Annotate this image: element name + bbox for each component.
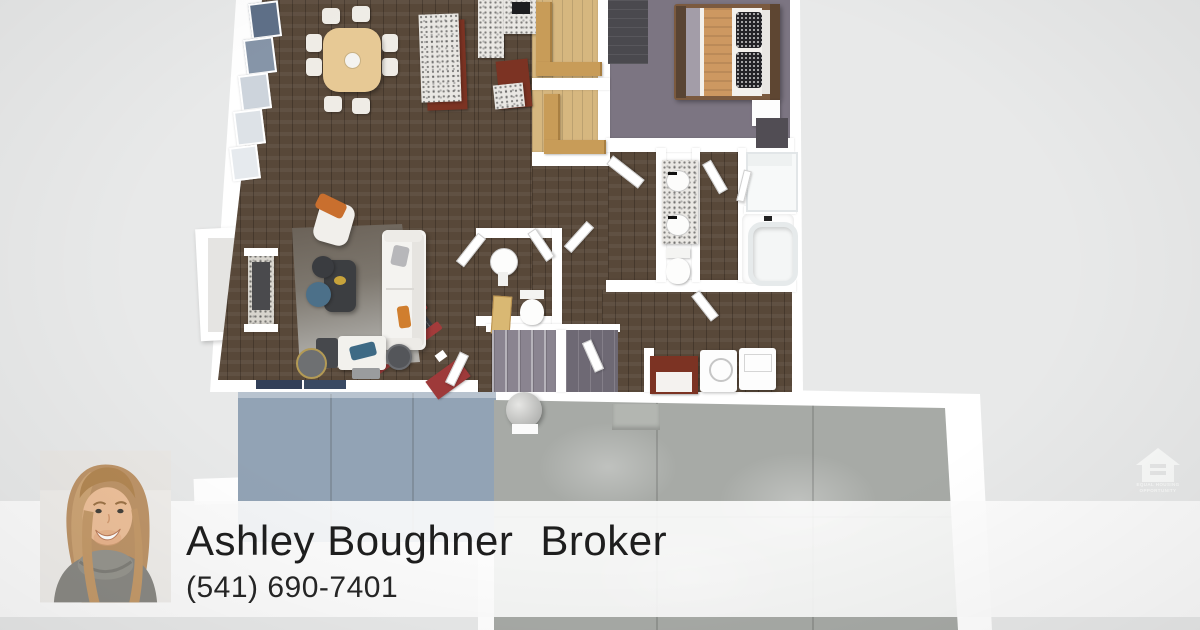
kitchen-counter — [478, 0, 504, 58]
toilet — [666, 258, 690, 284]
fireplace — [252, 262, 270, 310]
staircase — [492, 330, 558, 392]
window — [304, 380, 346, 389]
sink-pedestal — [498, 272, 508, 286]
dining-chair — [382, 58, 398, 76]
shower-bench — [748, 154, 792, 166]
bed-pillow — [736, 12, 762, 48]
stair-divider-wall — [556, 330, 566, 392]
equal-housing-logo: EQUAL HOUSING OPPORTUNITY — [1130, 448, 1186, 500]
bed-pillow — [736, 52, 762, 88]
faucet — [668, 216, 677, 219]
water-heater — [506, 392, 542, 428]
dining-table-centerpiece — [344, 52, 361, 69]
bathtub — [748, 222, 798, 286]
sofa-armrest — [384, 230, 422, 242]
water-heater-base — [512, 424, 538, 434]
toilet-tank — [666, 248, 690, 258]
stairwell-opening — [608, 0, 648, 64]
agent-phone: (541) 690-7401 — [186, 571, 398, 605]
fireplace-mantle — [244, 248, 278, 256]
dining-chair — [352, 6, 370, 22]
bedroom-rug — [756, 118, 788, 148]
wall — [552, 228, 562, 326]
window — [248, 0, 282, 39]
window — [233, 108, 266, 146]
round-pouf — [296, 348, 327, 379]
fireplace-mantle — [244, 324, 278, 332]
window — [229, 144, 261, 181]
dining-chair — [324, 96, 342, 112]
agent-title: Broker — [540, 517, 667, 564]
wall — [532, 78, 610, 90]
dryer-door — [709, 358, 733, 382]
agent-name-row: Ashley BoughnerBroker — [186, 517, 667, 565]
cooktop — [512, 2, 530, 14]
faucet — [668, 172, 677, 175]
pantry-shelf — [536, 62, 602, 76]
agent-name: Ashley Boughner — [186, 517, 513, 564]
equal-housing-text-line1: EQUAL HOUSING — [1130, 482, 1186, 488]
dining-chair — [382, 34, 398, 52]
side-table — [352, 368, 380, 379]
deck-edge-highlight — [238, 392, 496, 398]
wood-cabinet — [491, 295, 513, 334]
window — [238, 72, 272, 111]
agent-headshot-illustration — [40, 450, 171, 603]
pantry-shelf — [544, 140, 606, 154]
social-card: EQUAL HOUSING OPPORTUNITY Ashley Bo — [0, 0, 1200, 630]
window — [243, 36, 277, 75]
equal-housing-house-icon — [1136, 448, 1180, 482]
bed-quilt-band — [686, 8, 700, 96]
decor-bowl — [334, 276, 346, 285]
tub-faucet — [764, 216, 772, 221]
equal-housing-text-line2: OPPORTUNITY — [1130, 488, 1186, 494]
pouf — [306, 282, 331, 307]
toilet-tank — [520, 290, 544, 299]
dining-chair — [306, 58, 322, 76]
pouf — [312, 256, 334, 278]
wall — [532, 152, 610, 166]
laundry-cabinet-front — [656, 372, 692, 392]
round-side-table — [386, 344, 412, 370]
agent-photo — [40, 450, 171, 603]
bed-headboard — [770, 4, 780, 100]
kitchen-island — [418, 13, 461, 102]
washer-lid — [744, 354, 772, 372]
dining-chair — [352, 98, 370, 114]
kitchen-counter — [493, 82, 525, 109]
sofa-back — [412, 234, 424, 346]
dining-chair — [322, 8, 340, 24]
bed-footboard — [676, 6, 686, 98]
dining-chair — [306, 34, 322, 52]
window — [256, 380, 302, 389]
toilet — [520, 299, 544, 325]
wall — [476, 228, 562, 238]
sofa-cushion-seam — [386, 288, 414, 290]
bed-throw-runner — [704, 8, 732, 96]
garage-step — [612, 404, 660, 430]
